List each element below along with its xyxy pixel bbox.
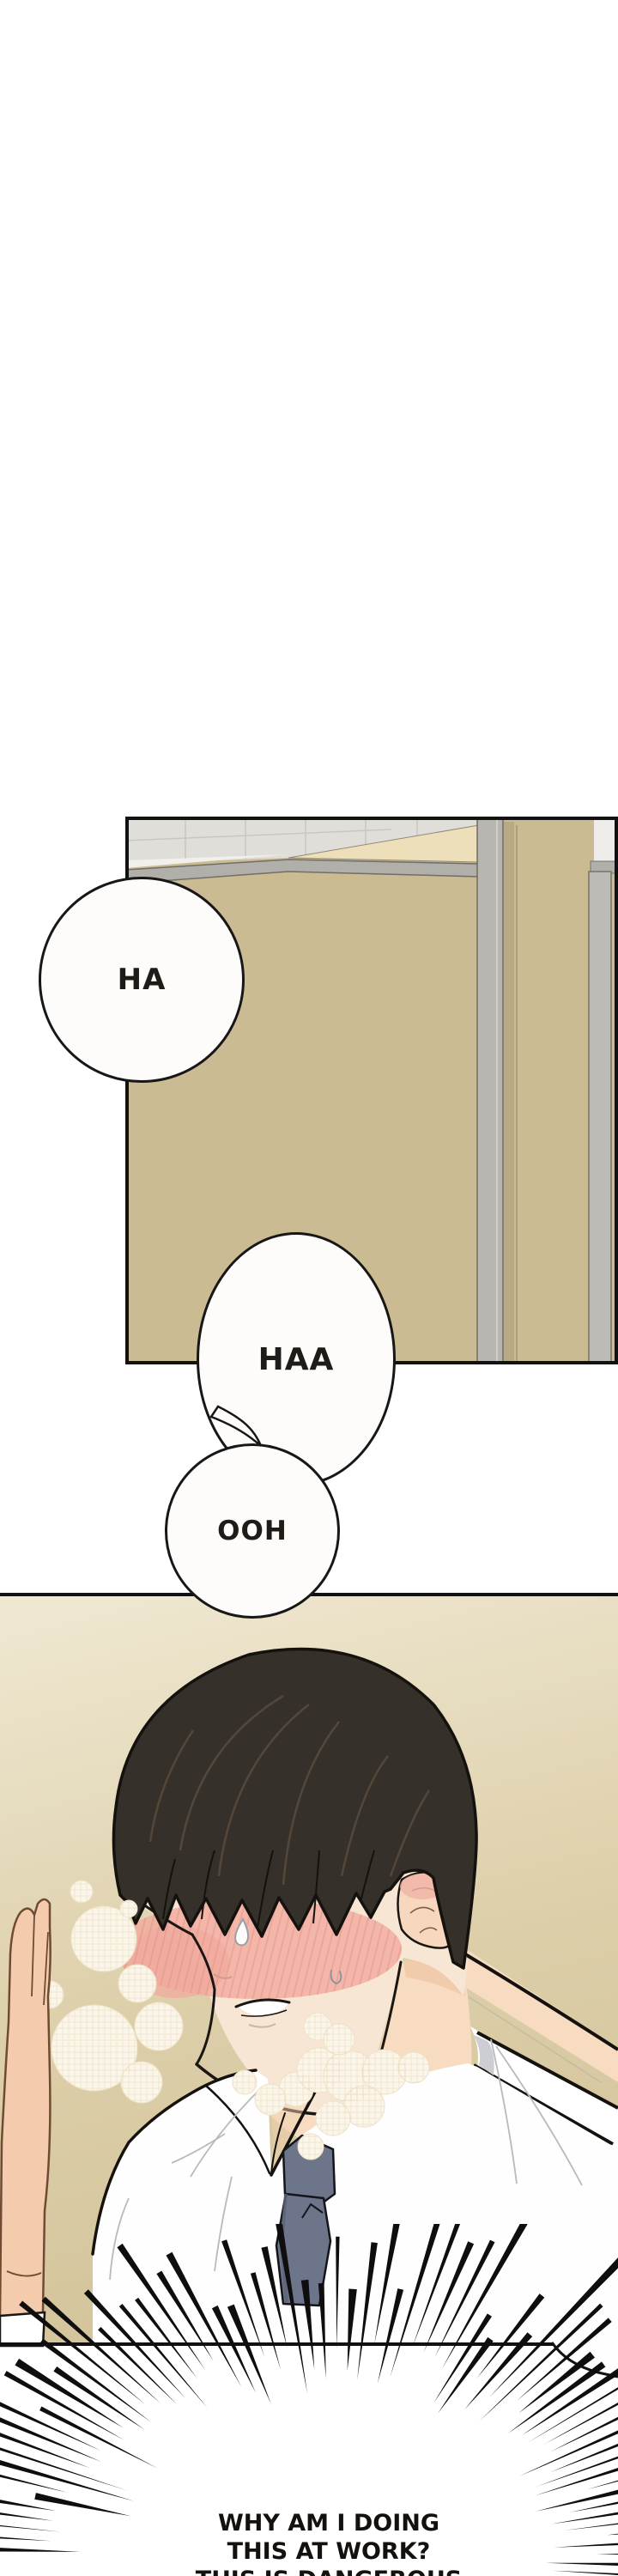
speech-bubble-ha: HA <box>39 877 245 1083</box>
bubble-text: HAA <box>258 1342 335 1377</box>
caption-line: WHY AM I DOING <box>20 2509 618 2537</box>
door-shade-strip <box>504 822 514 1364</box>
door-top-white <box>594 818 618 863</box>
inner-monologue-caption: WHY AM I DOING THIS AT WORK? THIS IS DAN… <box>20 2509 618 2576</box>
bubble-text: HA <box>118 963 167 997</box>
partition-post <box>477 818 503 1364</box>
door-frame-post <box>589 872 611 1364</box>
caption-line: THIS AT WORK? <box>20 2537 618 2566</box>
bubble-tail <box>201 1398 278 1451</box>
bubble-text: OOH <box>217 1516 288 1546</box>
comic-page: HA HAA OOH WHY AM I DOING THIS AT WORK? … <box>0 0 618 2576</box>
caption-line: THIS IS DANGEROUS <box>20 2566 618 2576</box>
speech-bubble-ooh: OOH <box>165 1443 340 1619</box>
